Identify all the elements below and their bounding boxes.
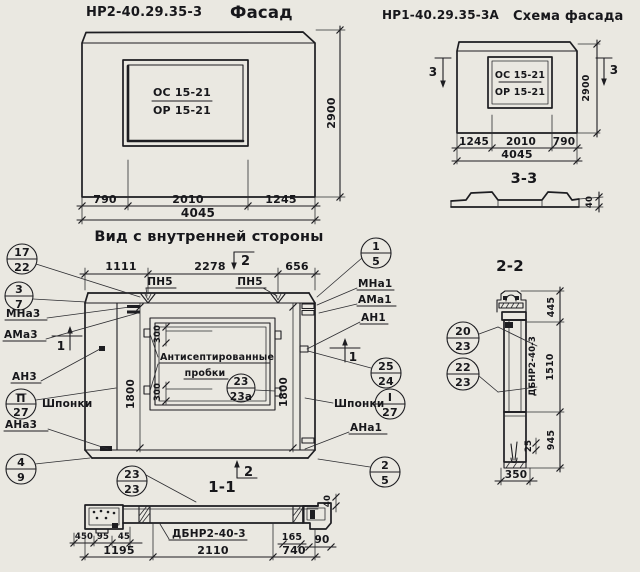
section-2-marker-top: 2: [231, 252, 254, 270]
pn5-label-2: ПН5: [237, 276, 262, 288]
note-line-1: Антисептированные: [160, 352, 274, 363]
callout-4: 4: [17, 456, 25, 469]
dim-445: 445: [546, 297, 557, 317]
dim-1800-left: 1800: [125, 379, 137, 409]
facade-scheme-view: НР1-40.29.35-3А Схема фасада ОС 15-21 ОР…: [382, 8, 624, 165]
dim-2010: 2010: [506, 136, 536, 148]
callout-27: 27: [382, 406, 398, 419]
facade-left-window: ОС 15-21 ОР 15-21: [123, 60, 248, 146]
marker-2-label: 2: [244, 465, 253, 480]
dim-656: 656: [285, 260, 309, 273]
section-3-3: 3-3 40: [451, 171, 603, 212]
part-label-1-1: ДБНР2-40-3: [160, 524, 247, 540]
facade-left-title: Фасад: [230, 3, 293, 22]
part-label-2-2: ДБНР2-40-3: [479, 327, 538, 396]
window-mark-top: ОС 15-21: [153, 86, 211, 99]
section-1-1-dims: 450 95 45 165 90 40 1195 2110 740: [70, 494, 340, 561]
dim-2900: 2900: [325, 97, 338, 129]
dim-1111: 1111: [105, 260, 136, 273]
dim-2900: 2900: [581, 74, 592, 101]
callout-numerator: 23: [233, 376, 248, 388]
callout-denominator: 23: [455, 340, 471, 353]
pn5-pockets: [141, 294, 285, 303]
callout-22-23: 22 23: [447, 358, 479, 390]
dim-450: 450: [75, 532, 93, 542]
marker-2-label: 2: [241, 254, 250, 269]
callout-denominator: 23а: [230, 391, 252, 403]
drawing-sheet: НР2-40.29.35-3 Фасад ОС 15-21 ОР 15-21 7…: [0, 0, 640, 572]
callout-9: 9: [17, 471, 25, 484]
callout-23-23: 23 23: [117, 466, 196, 502]
dim-4045: 4045: [181, 206, 215, 220]
part-designation: ДБНР2-40-3: [172, 528, 246, 540]
callout-i: I: [388, 391, 392, 404]
dim-1800-right: 1800: [278, 377, 290, 407]
section-2-marker-bottom: 2: [234, 460, 257, 480]
dim-40: 40: [323, 495, 333, 507]
pn5-label-1: ПН5: [147, 276, 172, 288]
dim-1245: 1245: [265, 193, 296, 206]
dim-300-top: 300: [153, 325, 163, 343]
label-an3: АН3: [12, 371, 37, 383]
facade-scheme-dims: 2900 1245 2010 790 4045: [452, 40, 601, 165]
callout-p: П: [16, 392, 25, 405]
dim-300-bottom: 300: [153, 383, 163, 401]
label-ana1: АНа1: [350, 422, 382, 434]
section-2-2: 2-2 20 23 22 23: [447, 257, 564, 485]
drawing-canvas: НР2-40.29.35-3 Фасад ОС 15-21 ОР 15-21 7…: [0, 0, 640, 572]
window-mark-bottom: ОР 15-21: [153, 104, 211, 117]
section-3-3-dim: 40: [579, 192, 603, 212]
section-3-3-profile: [451, 192, 579, 207]
section-3-3-label: 3-3: [511, 171, 538, 187]
section-3-marker-right: 3: [596, 58, 618, 86]
dim-95: 95: [97, 532, 109, 542]
dim-2278: 2278: [194, 260, 225, 273]
callout-17: 17: [14, 246, 30, 259]
section-2-2-label: 2-2: [496, 257, 524, 275]
dim-1245: 1245: [459, 136, 489, 148]
label-keys-left: Шпонки: [42, 398, 92, 410]
marker-3-label: 3: [610, 63, 619, 77]
inner-top-dims: 1111 2278 656: [80, 260, 320, 292]
facade-left-code: НР2-40.29.35-3: [86, 5, 202, 20]
callout-numerator: 23: [124, 468, 140, 481]
facade-scheme-panel: ОС 15-21 ОР 15-21: [457, 42, 577, 133]
label-ama1: АМа1: [358, 294, 392, 306]
facade-scheme-code: НР1-40.29.35-3А: [382, 8, 500, 22]
dim-1195: 1195: [103, 544, 134, 557]
callout-2: 2: [381, 459, 389, 472]
callout-24: 24: [378, 375, 394, 388]
callout-27: 27: [13, 406, 29, 419]
facade-left-view: НР2-40.29.35-3 Фасад ОС 15-21 ОР 15-21 7…: [77, 3, 345, 224]
dim-4045: 4045: [501, 148, 532, 161]
callout-denominator: 23: [455, 376, 471, 389]
dim-350: 350: [505, 469, 528, 481]
marker-3-label: 3: [429, 65, 438, 79]
section-3-marker-left: 3: [429, 58, 451, 88]
callouts-left: 17 22 3 7 МНа3 АМа3 АН3 П 27 Шпонки АНа3…: [3, 244, 140, 484]
facade-scheme-title: Схема фасада: [513, 9, 624, 24]
section-1-1-label: 1-1: [208, 478, 236, 496]
callout-denominator: 23: [124, 483, 140, 496]
dim-945: 945: [546, 430, 557, 450]
callout-1: 1: [372, 240, 380, 253]
dim-90: 90: [314, 534, 329, 546]
dim-740: 740: [282, 544, 306, 557]
callout-3: 3: [15, 283, 23, 296]
section-1-1: 23 23 1-1 ДБНР2-40-3: [70, 466, 340, 561]
callout-numerator: 22: [455, 361, 471, 374]
note-line-2: пробки: [185, 368, 226, 379]
label-ama3: АМа3: [4, 329, 38, 341]
callout-23-23a: 23 23а: [227, 374, 275, 403]
label-ana3: АНа3: [5, 419, 37, 431]
callout-22: 22: [14, 261, 30, 274]
label-mna3: МНа3: [6, 308, 40, 320]
dim-2110: 2110: [197, 544, 229, 557]
dim-25: 25: [524, 440, 534, 452]
marker-1-label: 1: [57, 339, 66, 353]
dim-2010: 2010: [172, 193, 204, 206]
window-mark-top: ОС 15-21: [495, 70, 545, 81]
section-2-2-profile: [497, 291, 526, 468]
dim-165: 165: [282, 532, 302, 543]
callout-5: 5: [372, 255, 380, 268]
dim-45: 45: [118, 532, 130, 542]
dim-790: 790: [553, 136, 576, 148]
section-1-marker-right: 1: [330, 338, 360, 364]
facade-left-dims: 790 2010 1245 4045 2900: [77, 26, 345, 224]
dim-40: 40: [585, 196, 595, 208]
inner-view: Вид с внутренней стороны: [3, 229, 405, 487]
inner-window: [144, 318, 281, 410]
window-mark-bottom: ОР 15-21: [495, 87, 545, 98]
dim-790: 790: [93, 193, 117, 206]
part-designation: ДБНР2-40-3: [528, 336, 538, 396]
callout-20-23: 20 23: [447, 322, 479, 354]
callout-5: 5: [381, 474, 389, 487]
dim-1510: 1510: [545, 353, 556, 380]
callout-numerator: 20: [455, 325, 471, 338]
label-mna1: МНа1: [358, 278, 392, 290]
marker-1-label: 1: [349, 350, 358, 364]
callout-25: 25: [378, 360, 394, 373]
plug-dims: 300 300: [153, 324, 212, 405]
inner-view-title: Вид с внутренней стороны: [94, 229, 323, 245]
label-an1: АН1: [361, 312, 386, 324]
